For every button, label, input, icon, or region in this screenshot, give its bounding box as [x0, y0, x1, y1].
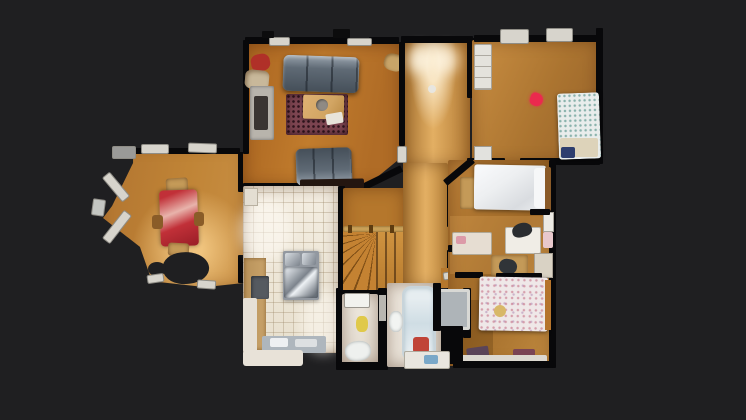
railing-post	[390, 225, 394, 233]
vanity-item-blue	[424, 355, 438, 364]
counter-items	[295, 339, 317, 347]
floor-debris	[146, 273, 164, 284]
fireplace-opening	[254, 96, 268, 130]
sofa	[282, 55, 359, 94]
shower-stall	[437, 289, 470, 330]
dining-chair	[152, 215, 163, 229]
floor-debris	[197, 279, 217, 289]
bed-item-yellow	[494, 305, 506, 317]
bedroom2-partial-wall	[530, 209, 550, 215]
dresser	[474, 44, 492, 90]
living-window-sill	[347, 38, 372, 46]
dining-chair	[194, 212, 204, 226]
island-cooktop	[284, 267, 318, 298]
hall-left-wall	[399, 42, 405, 146]
bedroom1-top-wall	[474, 35, 600, 42]
living-top-wall	[369, 37, 399, 44]
bed-frame-edge	[545, 280, 551, 330]
chimney-bump	[262, 31, 274, 38]
hall-top-wall	[401, 36, 473, 43]
wood-bench	[460, 177, 474, 209]
white-cabinet	[243, 298, 257, 352]
stainless-pan	[302, 253, 316, 265]
winder-treads	[343, 230, 376, 292]
dining-window-sill	[188, 142, 217, 153]
chimney-bump	[333, 29, 350, 38]
stair-railing	[343, 226, 411, 232]
living-top-wall	[287, 37, 349, 44]
sink	[270, 338, 288, 347]
wall-fixtures	[379, 295, 386, 321]
pink-bin	[456, 236, 466, 244]
laundry-basket	[356, 316, 368, 332]
hall-door	[397, 146, 407, 163]
ceiling-light-glow	[408, 46, 430, 74]
kitchen-cabinet-top	[244, 188, 258, 206]
stainless-pan	[285, 253, 300, 266]
living-window-sill	[269, 37, 290, 46]
railing-post	[348, 225, 352, 233]
bath-left-wall	[336, 288, 342, 368]
living-left-wall	[243, 40, 249, 154]
bath-bottom-wall	[336, 362, 388, 370]
railing-post	[369, 225, 373, 233]
range	[251, 276, 269, 299]
ceiling-light-glow	[434, 46, 458, 74]
bay-nub	[91, 198, 106, 217]
window-ac-unit	[500, 29, 529, 44]
smoke-detector	[428, 85, 436, 93]
bedroom3-bottom-wall	[453, 361, 553, 368]
dining-window-sill	[141, 144, 169, 154]
headboard	[545, 167, 551, 211]
bath-right-wall	[433, 283, 441, 331]
radiator	[543, 212, 554, 232]
bed-floral	[479, 276, 549, 331]
table-decor	[316, 99, 328, 111]
pink-items	[543, 232, 553, 248]
red-dining-table	[159, 189, 199, 246]
toilet-main	[389, 311, 403, 332]
sideboard	[112, 146, 136, 159]
floorplan-canvas[interactable]	[0, 0, 746, 420]
counter-edge	[243, 350, 303, 366]
bathroom-sink	[344, 293, 370, 308]
window-ac-unit	[546, 28, 573, 42]
navy-blanket	[561, 147, 575, 158]
